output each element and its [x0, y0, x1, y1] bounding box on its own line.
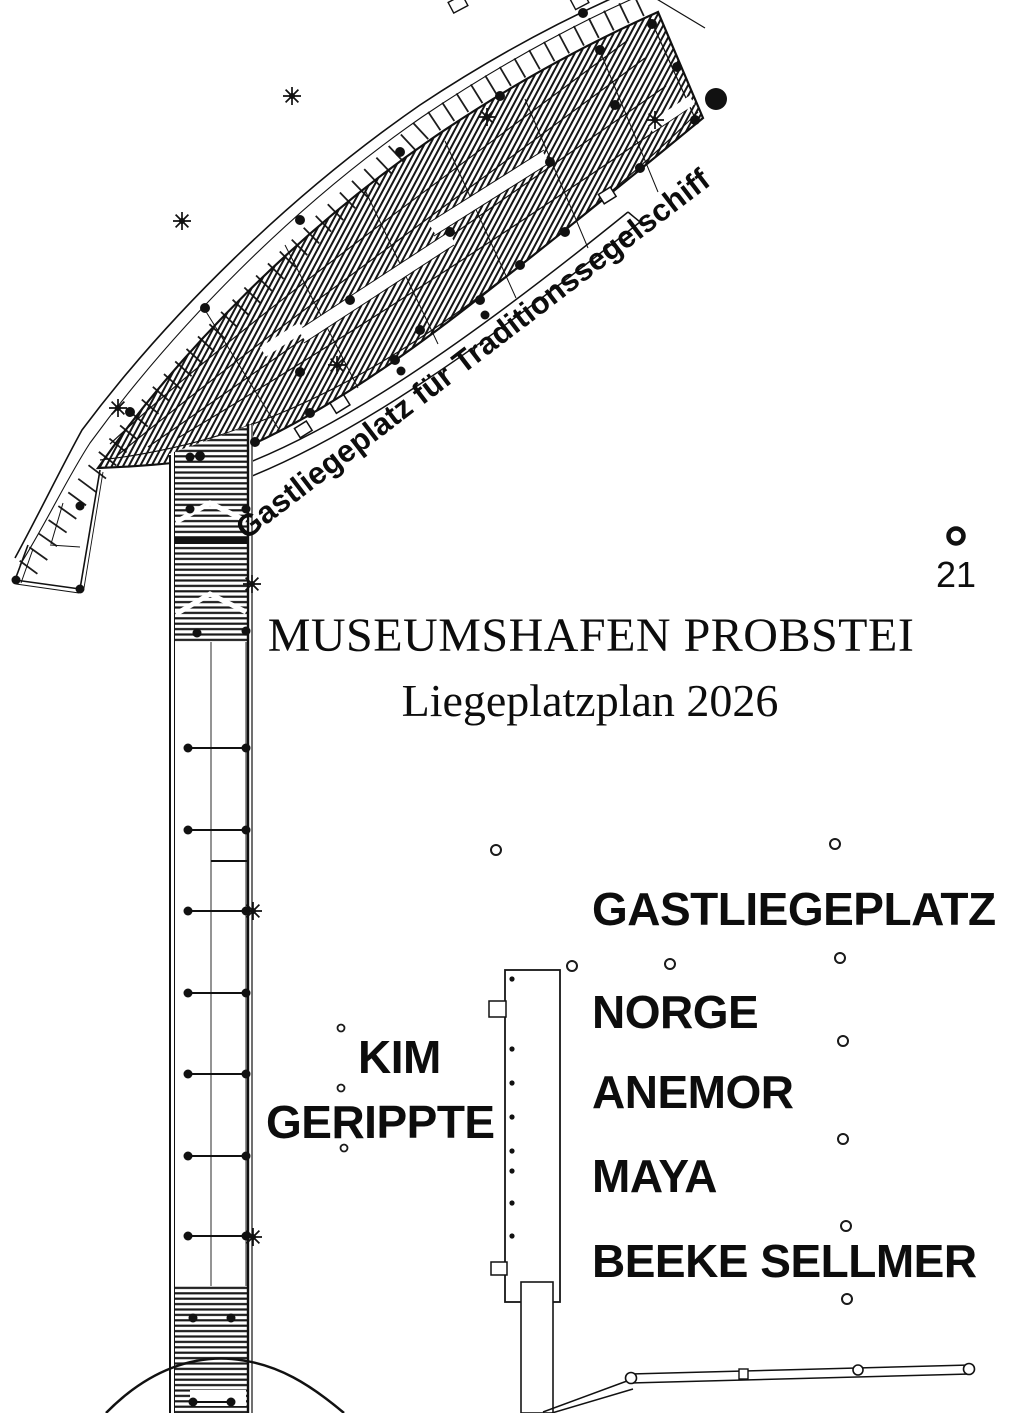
berth-label-gerippte: GERIPPTE: [266, 1098, 495, 1148]
guest-berth-heading: GASTLIEGEPLATZ: [592, 885, 996, 935]
floating-boom: [543, 1364, 975, 1413]
berth-21-ring-marker: [949, 529, 964, 544]
plan-subtitle: Liegeplatzplan 2026: [402, 676, 779, 726]
guest-pier-walkway: [521, 1282, 553, 1413]
berth-label-norge: NORGE: [592, 988, 758, 1038]
berth-label-beeke-sellmer: BEEKE SELLMER: [592, 1237, 977, 1287]
berth-label-kim: KIM: [358, 1033, 441, 1083]
guest-pier: [489, 970, 560, 1413]
breakwater-tail: [12, 470, 104, 594]
buoy-marker: [705, 88, 727, 110]
plan-title: MUSEUMSHAFEN PROBSTEI: [268, 610, 915, 662]
berth-label-anemor: ANEMOR: [592, 1068, 793, 1118]
harbor-berth-plan: Gastliegeplatz für Traditionssegelschiff…: [0, 0, 1024, 1413]
main-pier-bridge: [169, 423, 253, 1413]
berth-21-number-label: 21: [936, 556, 976, 595]
berth-label-maya: MAYA: [592, 1152, 717, 1202]
breakwater-pontoon: [12, 0, 706, 594]
